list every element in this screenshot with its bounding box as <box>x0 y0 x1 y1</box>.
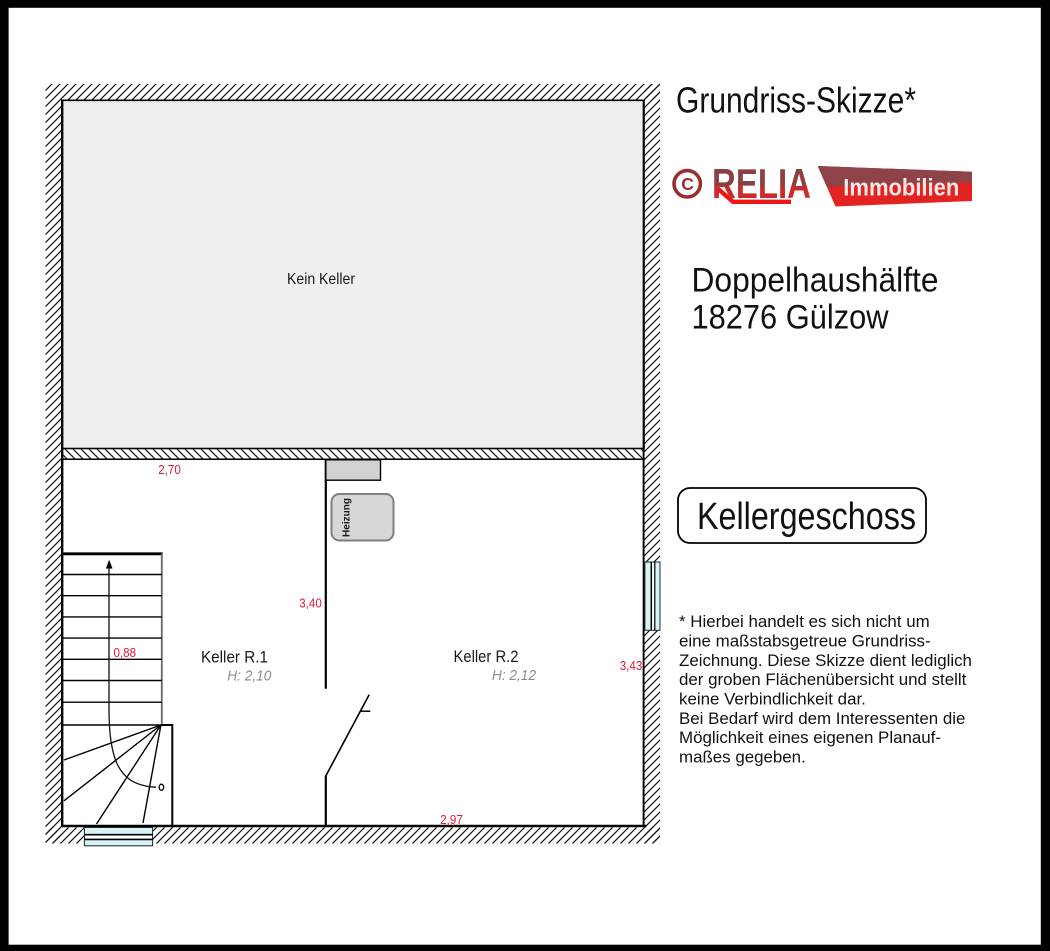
svg-text:18276 Gülzow: 18276 Gülzow <box>692 299 889 337</box>
svg-text:3,43: 3,43 <box>620 658 643 673</box>
svg-text:Bei Bedarf wird dem Interessen: Bei Bedarf wird dem Interessenten die <box>679 709 965 728</box>
svg-text:Immobilien: Immobilien <box>843 175 959 202</box>
svg-text:maßes gegeben.: maßes gegeben. <box>679 747 806 766</box>
svg-text:eine maßstabsgetreue Grundriss: eine maßstabsgetreue Grundriss- <box>679 631 931 650</box>
svg-text:Grundriss-Skizze*: Grundriss-Skizze* <box>676 80 916 121</box>
svg-text:Zeichnung. Diese Skizze dient: Zeichnung. Diese Skizze dient lediglich <box>679 651 972 670</box>
svg-text:0,88: 0,88 <box>114 645 137 660</box>
svg-text:2,70: 2,70 <box>158 462 181 477</box>
svg-text:3,40: 3,40 <box>299 596 322 611</box>
svg-text:Kellergeschoss: Kellergeschoss <box>697 496 916 538</box>
svg-text:Keller R.2: Keller R.2 <box>454 648 519 666</box>
svg-text:Keller R.1: Keller R.1 <box>201 649 268 667</box>
svg-text:RELIA: RELIA <box>712 160 811 207</box>
svg-text:Heizung: Heizung <box>342 498 353 537</box>
svg-text:H: 2,12: H: 2,12 <box>492 667 537 684</box>
svg-text:keine Verbindlichkeit dar.: keine Verbindlichkeit dar. <box>679 689 866 708</box>
svg-text:* Hierbei handelt es sich nich: * Hierbei handelt es sich nicht um <box>679 612 930 631</box>
svg-text:C: C <box>681 174 694 194</box>
svg-text:H: 2,10: H: 2,10 <box>227 668 272 685</box>
svg-text:Möglichkeit eines eigenen Plan: Möglichkeit eines eigenen Planauf- <box>679 728 941 747</box>
svg-text:Kein Keller: Kein Keller <box>287 271 356 288</box>
svg-text:Doppelhaushälfte: Doppelhaushälfte <box>692 262 939 300</box>
svg-text:2,97: 2,97 <box>440 812 463 827</box>
svg-text:der groben Flächenübersicht un: der groben Flächenübersicht und stellt <box>679 670 967 689</box>
